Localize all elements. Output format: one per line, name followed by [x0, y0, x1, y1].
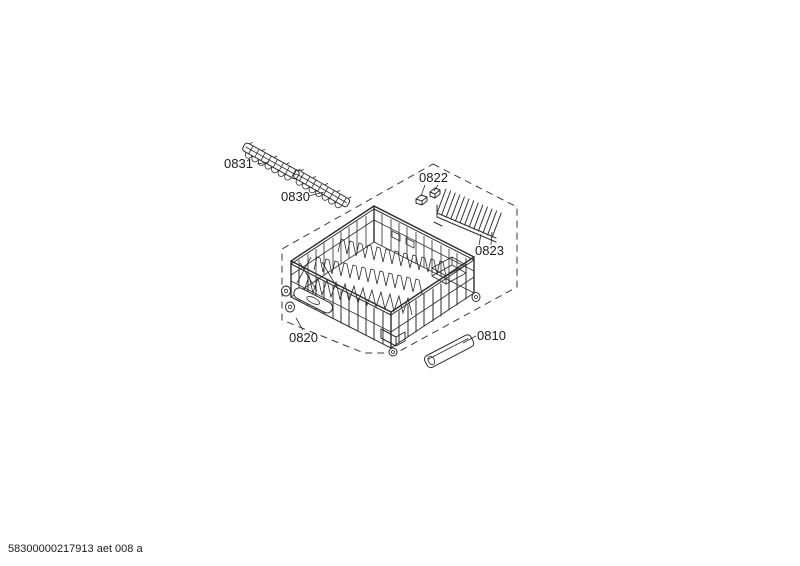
tine-row-tines — [437, 189, 501, 237]
label-0823: 0823 — [475, 243, 504, 258]
label-0820: 0820 — [289, 330, 318, 345]
part-0823-tine-row — [434, 189, 501, 242]
parts-diagram-canvas: 0831 0830 0822 0823 0820 0810 5830000021… — [0, 0, 800, 566]
label-0810: 0810 — [477, 328, 506, 343]
clip-left — [416, 195, 427, 205]
handle-trim-rim — [428, 338, 469, 359]
basket-base-back — [291, 242, 474, 297]
part-labels: 0831 0830 0822 0823 0820 0810 — [224, 156, 506, 345]
wheel-right — [472, 293, 480, 302]
part-0810-handle-trim — [423, 333, 475, 369]
label-0822: 0822 — [419, 170, 448, 185]
label-0830: 0830 — [281, 189, 310, 204]
tine-row-end — [434, 205, 442, 226]
leader-0822-left — [421, 185, 425, 196]
page: 0831 0830 0822 0823 0820 0810 5830000021… — [0, 0, 800, 566]
wheel-left-upper — [282, 286, 291, 296]
leader-0810 — [463, 336, 476, 343]
leader-0820 — [296, 318, 303, 330]
wheel-front — [389, 348, 397, 356]
basket-back-wall-clips — [392, 231, 414, 248]
basket-front-corner-bracket — [381, 329, 405, 346]
wheel-left-lower — [286, 302, 295, 312]
part-0822-clips — [416, 188, 440, 205]
label-0831: 0831 — [224, 156, 253, 171]
handle-trim-end — [427, 355, 436, 366]
footer-document-code: 58300000217913 aet 008 a — [8, 543, 143, 555]
